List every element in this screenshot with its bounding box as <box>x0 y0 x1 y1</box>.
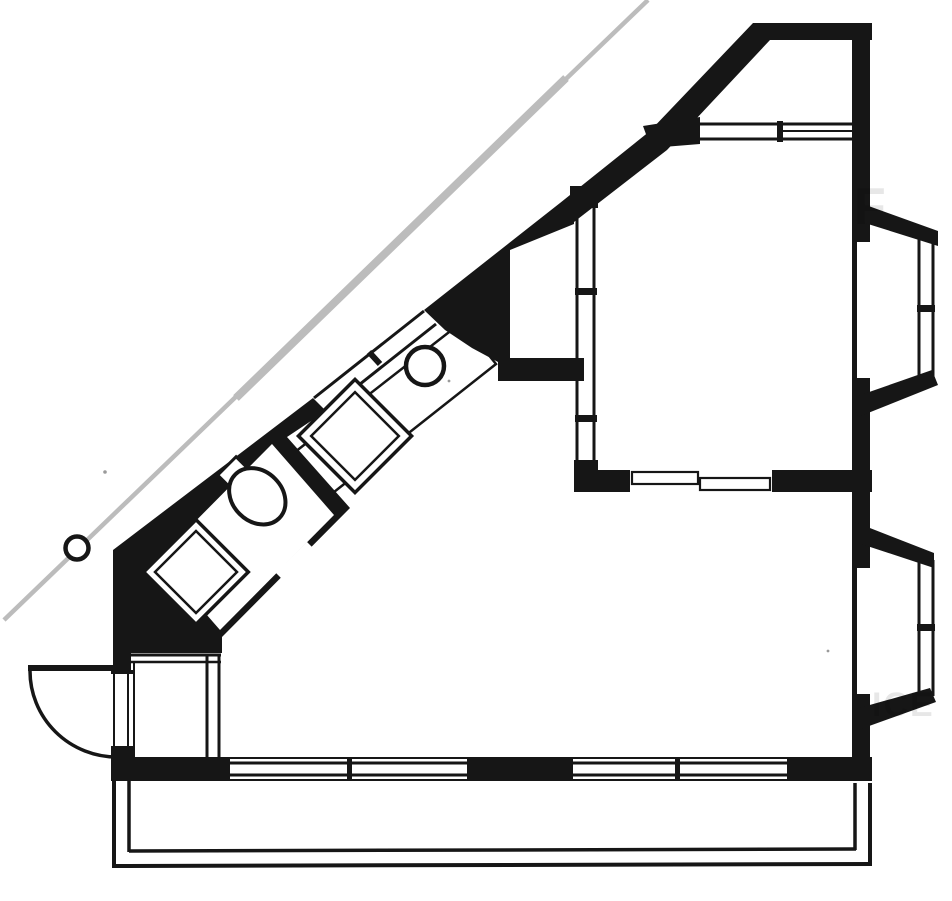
bay-1-opening <box>857 242 870 378</box>
window-mullion <box>369 352 380 364</box>
sliding-pane-2 <box>700 478 770 490</box>
door-swing-arc <box>30 671 117 757</box>
window-mullion <box>917 305 935 312</box>
sliding-pane-1 <box>632 472 698 484</box>
balcony <box>112 781 872 867</box>
bay-2-opening <box>857 568 870 694</box>
vestibule <box>131 655 221 757</box>
bedroom-loggia-window <box>700 121 853 142</box>
door-leaf <box>28 665 117 671</box>
entry-door <box>28 665 133 757</box>
watermark-fragment-2: ICE <box>872 686 935 724</box>
floor-plan-document: F ICE <box>0 0 952 901</box>
bedroom-side-window-band <box>575 206 597 462</box>
floor-plan-canvas: F ICE <box>0 0 952 901</box>
watermark-fragment-1: F <box>854 178 888 236</box>
cooktop-circle <box>406 347 444 385</box>
window-band-top-connector <box>570 186 598 208</box>
window-mullion <box>575 288 597 295</box>
window-mullion <box>575 415 597 422</box>
bedroom-window-wall-stub <box>643 117 700 148</box>
bay-window-1-glazing <box>917 239 935 380</box>
bay-window-2-glazing <box>917 560 935 696</box>
window-band-bottom-corner <box>574 460 598 492</box>
window-mullion <box>917 624 935 631</box>
survey-marker <box>66 537 89 560</box>
